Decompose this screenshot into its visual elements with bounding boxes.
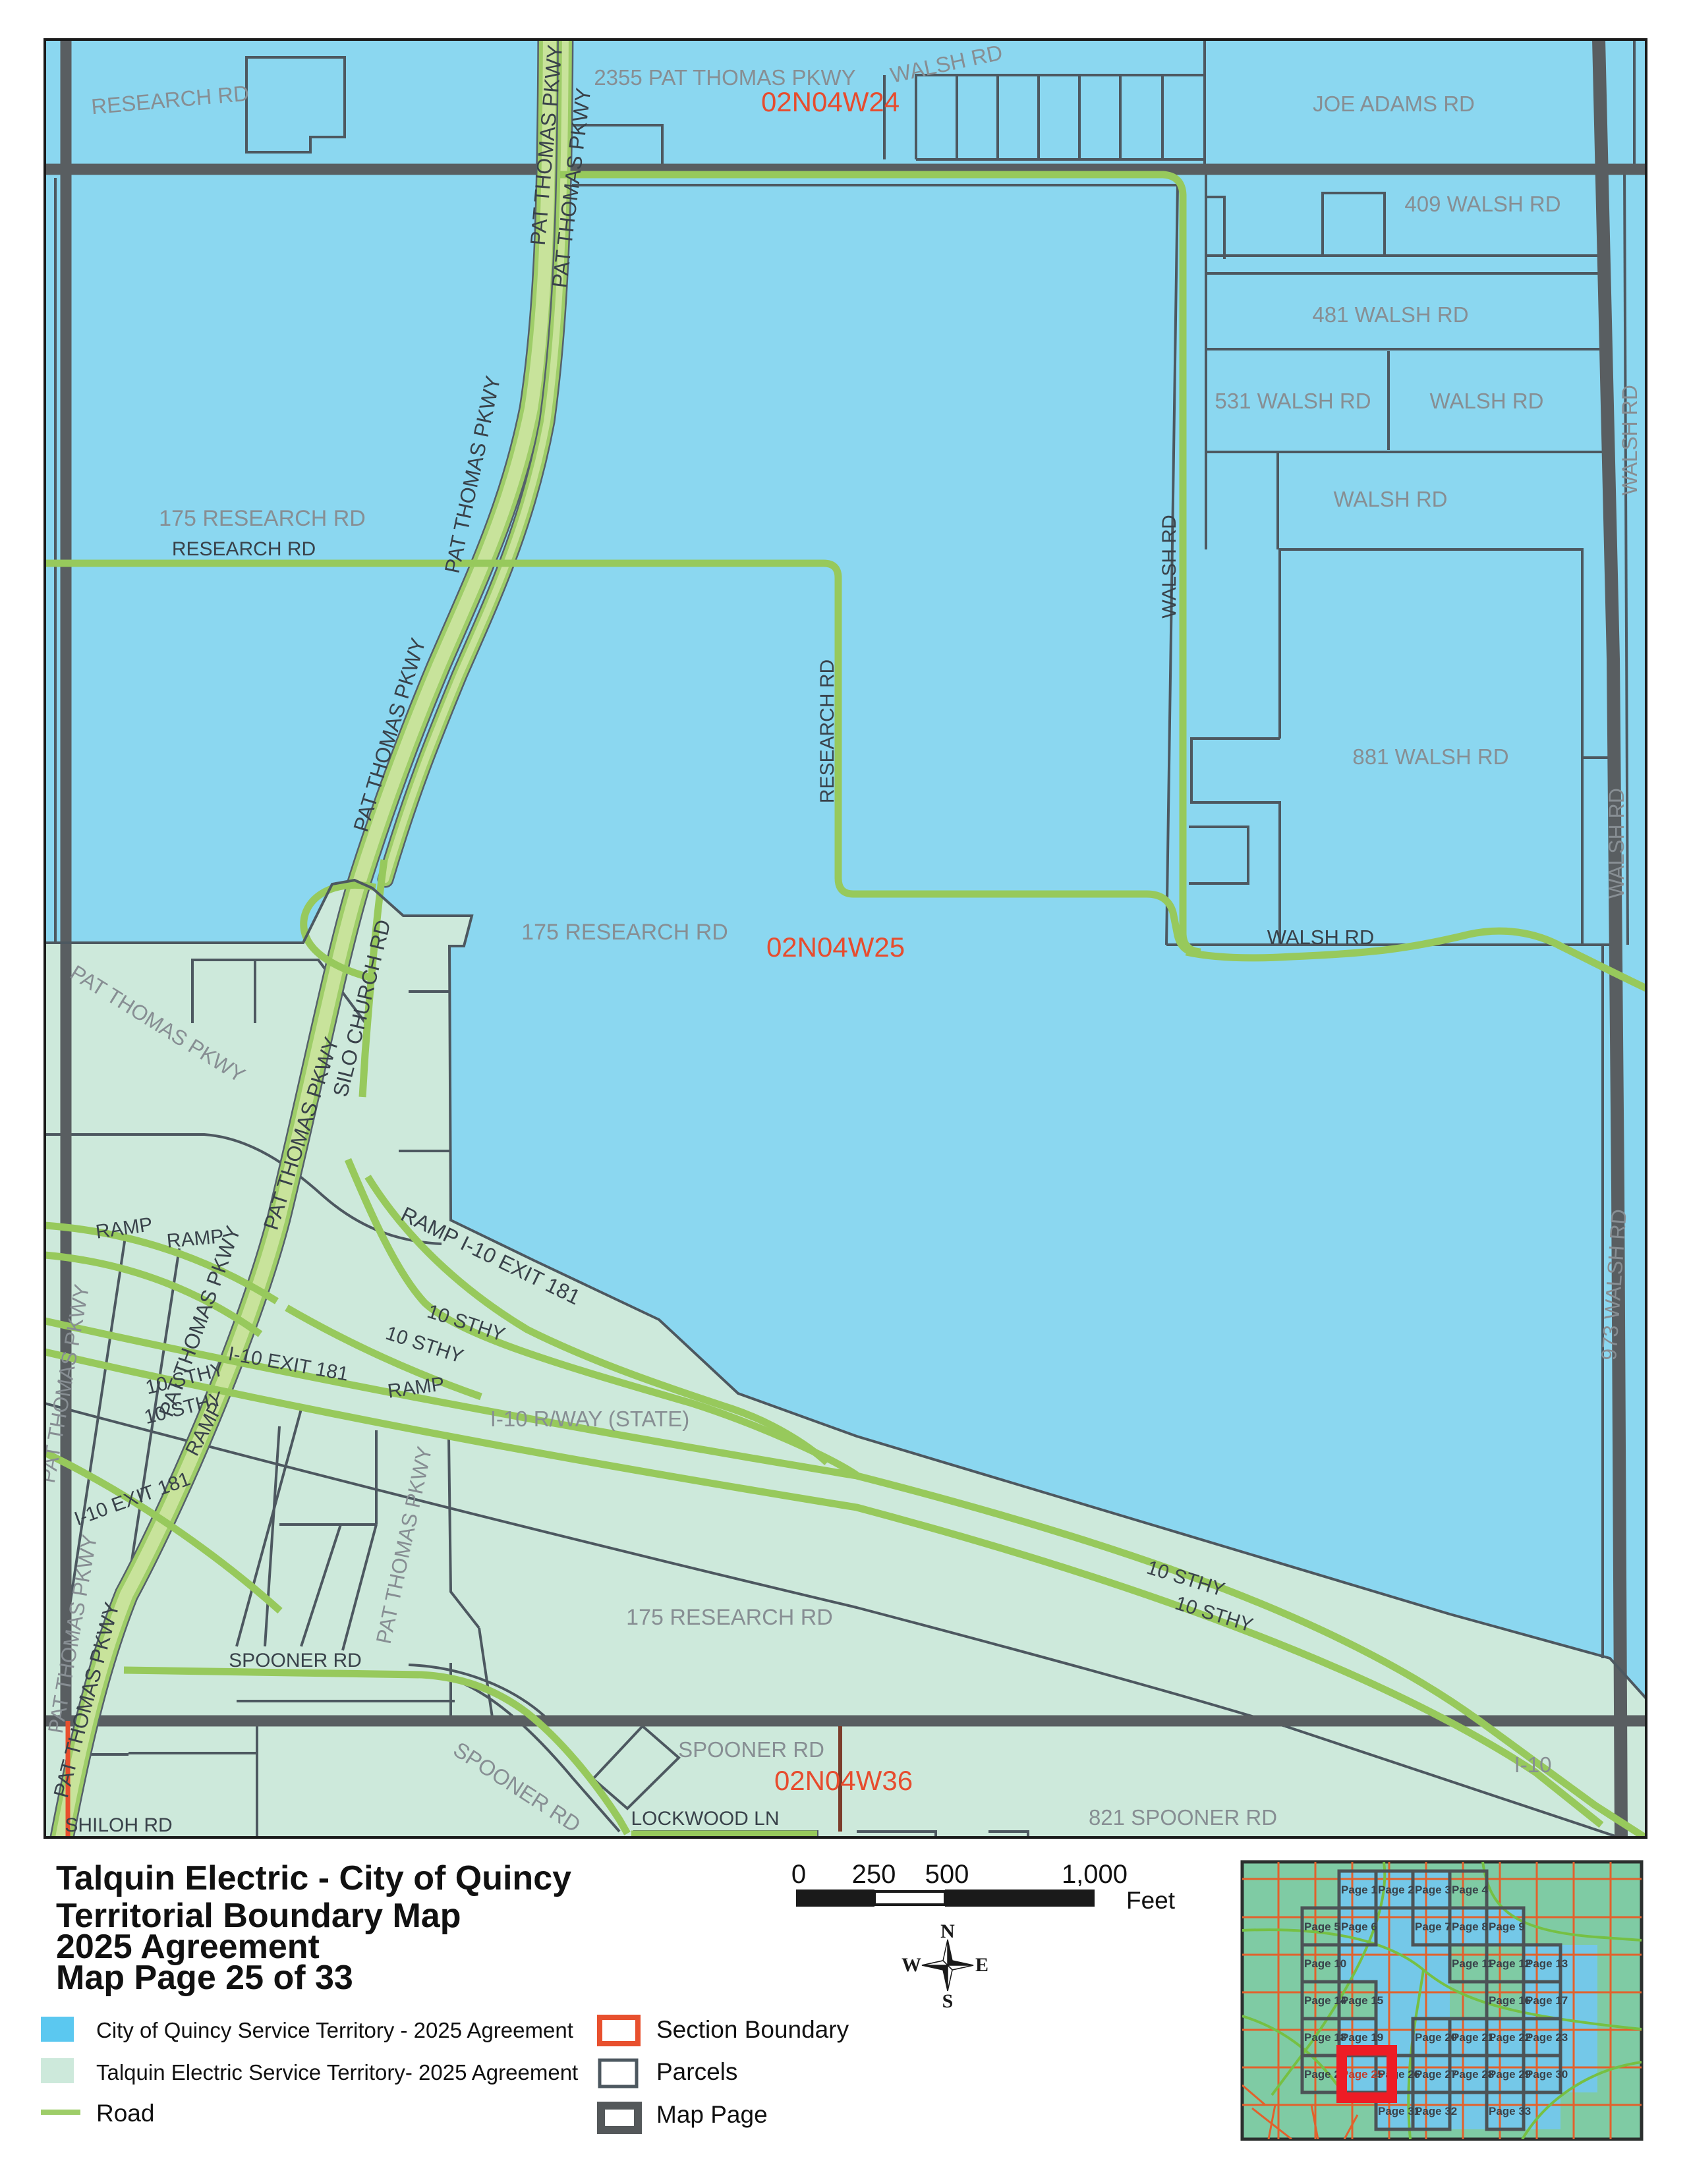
svg-text:W: W <box>902 1954 921 1976</box>
svg-text:Page 33: Page 33 <box>1489 2105 1531 2117</box>
svg-text:175 RESEARCH RD: 175 RESEARCH RD <box>521 920 728 945</box>
svg-text:WALSH RD: WALSH RD <box>1430 389 1544 413</box>
svg-text:Page 3: Page 3 <box>1415 1884 1451 1896</box>
svg-text:LOCKWOOD LN: LOCKWOOD LN <box>631 1808 779 1830</box>
svg-text:1,000: 1,000 <box>1062 1860 1128 1889</box>
svg-text:WALSH RD: WALSH RD <box>1605 788 1628 899</box>
svg-text:Map Page: Map Page <box>656 2101 768 2128</box>
svg-text:Page 27: Page 27 <box>1415 2068 1457 2081</box>
svg-text:175 RESEARCH RD: 175 RESEARCH RD <box>626 1605 833 1630</box>
svg-text:Section Boundary: Section Boundary <box>656 2016 849 2043</box>
svg-text:250: 250 <box>852 1860 896 1889</box>
svg-text:02N04W24: 02N04W24 <box>761 86 900 117</box>
svg-text:Talquin Electric Service Terri: Talquin Electric Service Territory- 2025… <box>96 2060 578 2085</box>
svg-text:02N04W25: 02N04W25 <box>766 932 905 963</box>
svg-text:WALSH RD: WALSH RD <box>1267 926 1374 949</box>
svg-text:RESEARCH RD: RESEARCH RD <box>172 538 316 560</box>
svg-text:N: N <box>940 1920 955 1942</box>
svg-text:Page 18: Page 18 <box>1304 2031 1346 2044</box>
svg-text:Talquin Electric - City of Qui: Talquin Electric - City of Quincy <box>56 1859 571 1897</box>
svg-text:Page 15: Page 15 <box>1341 1994 1383 2007</box>
svg-text:Page 22: Page 22 <box>1489 2031 1531 2044</box>
svg-text:481 WALSH RD: 481 WALSH RD <box>1312 302 1468 327</box>
svg-text:I-10 R/WAY (STATE): I-10 R/WAY (STATE) <box>490 1407 690 1431</box>
svg-text:City of Quincy Service Territo: City of Quincy Service Territory - 2025 … <box>96 2018 573 2042</box>
svg-text:Page 10: Page 10 <box>1304 1957 1346 1970</box>
svg-text:Page 29: Page 29 <box>1489 2068 1531 2081</box>
svg-text:Page 17: Page 17 <box>1526 1994 1568 2007</box>
svg-text:821 SPOONER RD: 821 SPOONER RD <box>1089 1805 1277 1830</box>
svg-text:Map Page 25 of 33: Map Page 25 of 33 <box>56 1959 353 1997</box>
svg-text:Page 26: Page 26 <box>1378 2068 1420 2081</box>
svg-text:409 WALSH RD: 409 WALSH RD <box>1404 192 1560 216</box>
svg-text:531 WALSH RD: 531 WALSH RD <box>1215 389 1371 413</box>
svg-text:SPOONER RD: SPOONER RD <box>678 1737 824 1762</box>
svg-text:175 RESEARCH RD: 175 RESEARCH RD <box>159 506 366 531</box>
svg-text:WALSH RD: WALSH RD <box>1618 385 1642 495</box>
svg-text:SPOONER RD: SPOONER RD <box>229 1650 362 1671</box>
svg-text:E: E <box>975 1954 988 1976</box>
svg-text:Page 2: Page 2 <box>1378 1884 1414 1896</box>
svg-text:Page 6: Page 6 <box>1341 1920 1377 1933</box>
svg-text:SHILOH RD: SHILOH RD <box>65 1814 172 1836</box>
svg-text:Page 23: Page 23 <box>1526 2031 1568 2044</box>
svg-text:RESEARCH RD: RESEARCH RD <box>816 659 838 803</box>
svg-text:Page 31: Page 31 <box>1378 2105 1420 2117</box>
svg-text:Page 12: Page 12 <box>1489 1957 1531 1970</box>
svg-text:Page 28: Page 28 <box>1452 2068 1494 2081</box>
svg-text:Page 8: Page 8 <box>1452 1920 1488 1933</box>
svg-text:I-10: I-10 <box>1514 1752 1552 1777</box>
svg-text:Page 1: Page 1 <box>1341 1884 1377 1896</box>
svg-text:Page 9: Page 9 <box>1489 1920 1525 1933</box>
svg-text:WALSH RD: WALSH RD <box>1334 487 1448 511</box>
svg-text:02N04W36: 02N04W36 <box>774 1765 913 1796</box>
svg-text:Page 11: Page 11 <box>1452 1957 1493 1970</box>
svg-text:Page 21: Page 21 <box>1452 2031 1494 2044</box>
svg-text:881 WALSH RD: 881 WALSH RD <box>1352 744 1508 769</box>
svg-text:Page 32: Page 32 <box>1415 2105 1457 2117</box>
svg-text:Page 20: Page 20 <box>1415 2031 1457 2044</box>
svg-text:JOE ADAMS RD: JOE ADAMS RD <box>1313 92 1475 116</box>
svg-text:Feet: Feet <box>1126 1887 1176 1914</box>
svg-text:Road: Road <box>96 2100 154 2127</box>
svg-text:Page 13: Page 13 <box>1526 1957 1568 1970</box>
svg-text:Page 19: Page 19 <box>1341 2031 1383 2044</box>
svg-text:Parcels: Parcels <box>656 2058 737 2085</box>
svg-text:0: 0 <box>791 1860 806 1889</box>
svg-text:WALSH RD: WALSH RD <box>1159 515 1180 618</box>
svg-text:500: 500 <box>925 1860 969 1889</box>
svg-text:S: S <box>942 1990 954 2012</box>
svg-text:Page 30: Page 30 <box>1526 2068 1568 2081</box>
svg-text:Page 25: Page 25 <box>1341 2068 1383 2081</box>
svg-text:Page 7: Page 7 <box>1415 1920 1451 1933</box>
svg-text:Page 16: Page 16 <box>1489 1994 1531 2007</box>
svg-text:Page 4: Page 4 <box>1452 1884 1488 1896</box>
svg-text:Page 5: Page 5 <box>1304 1920 1340 1933</box>
